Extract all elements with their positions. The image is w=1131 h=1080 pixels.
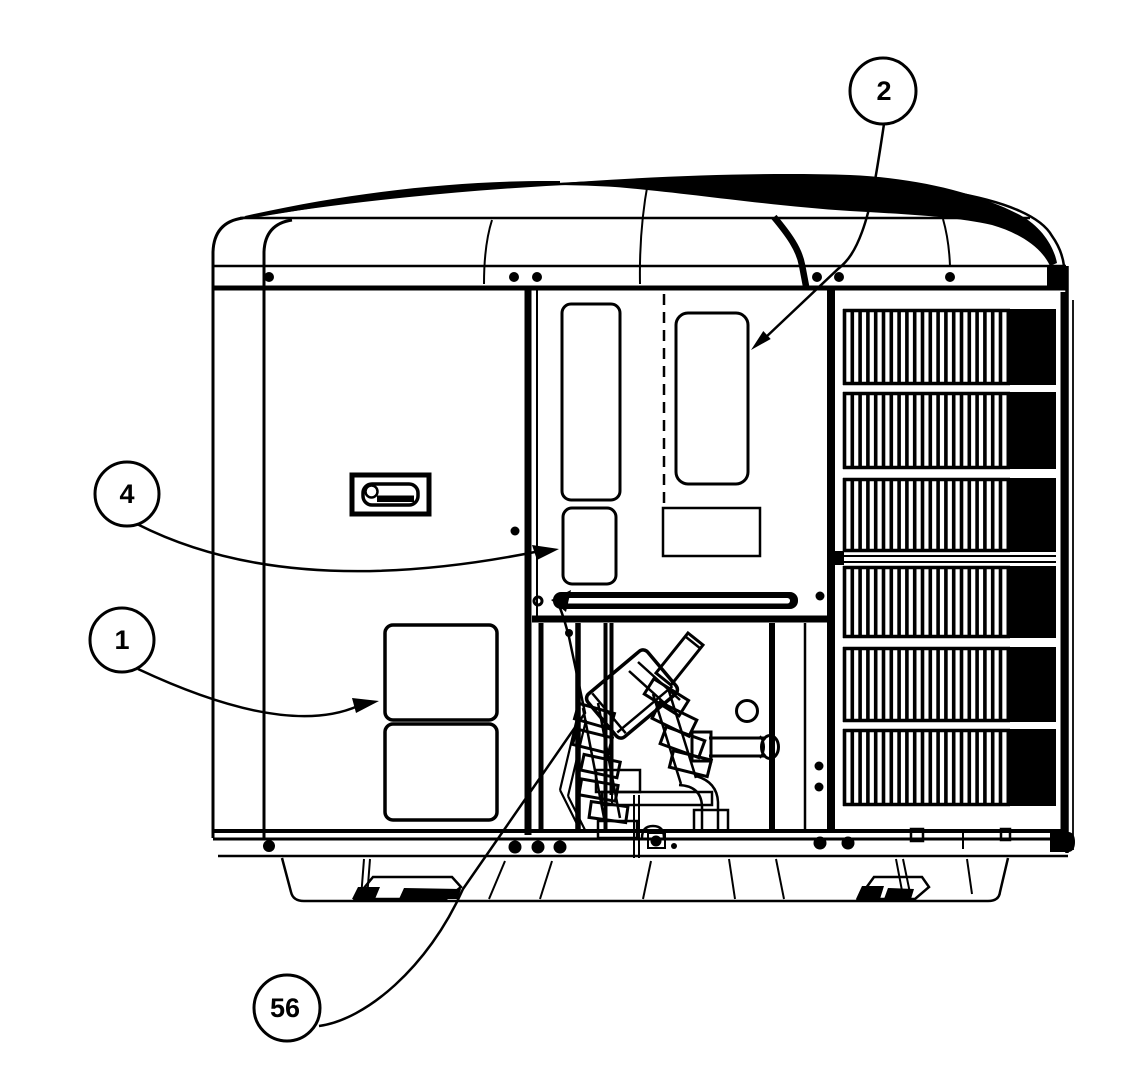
svg-text:2: 2 xyxy=(876,76,891,106)
svg-text:4: 4 xyxy=(119,479,134,509)
svg-text:1: 1 xyxy=(114,625,129,655)
svg-text:56: 56 xyxy=(270,993,300,1023)
